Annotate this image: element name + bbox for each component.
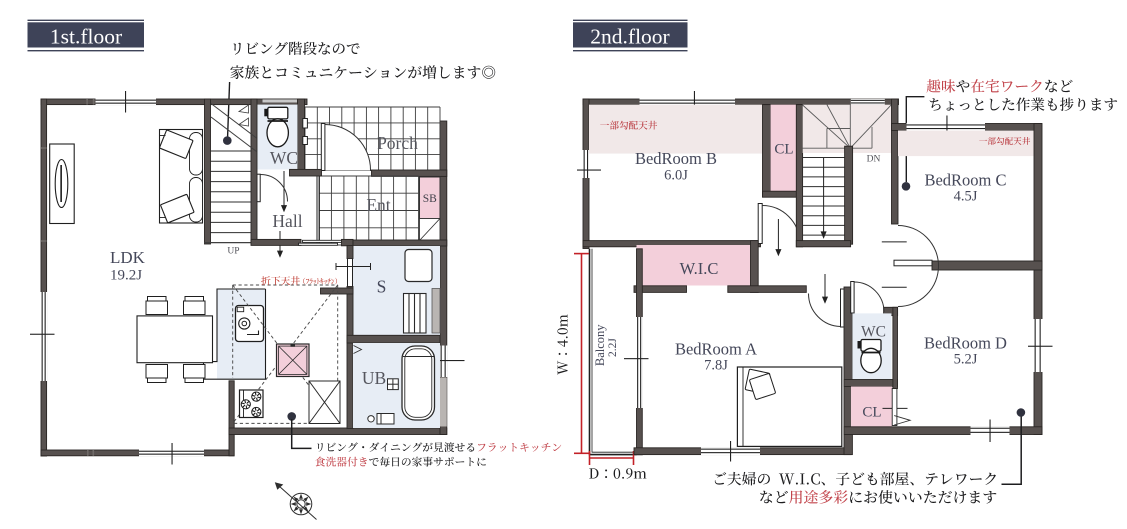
svg-text:CL: CL	[774, 142, 793, 158]
svg-text:1st.floor: 1st.floor	[50, 24, 122, 48]
svg-text:5.2J: 5.2J	[954, 352, 978, 368]
svg-text:WC: WC	[861, 324, 886, 341]
svg-text:DN: DN	[867, 155, 881, 165]
svg-text:2nd.floor: 2nd.floor	[590, 24, 669, 48]
svg-text:BedRoom D: BedRoom D	[924, 334, 1007, 353]
svg-text:6.0J: 6.0J	[664, 167, 688, 183]
svg-text:S: S	[377, 276, 387, 296]
svg-text:CL: CL	[862, 405, 881, 421]
svg-text:2.2J: 2.2J	[607, 338, 619, 357]
svg-text:UP: UP	[227, 247, 239, 257]
svg-text:Porch: Porch	[377, 133, 418, 153]
svg-text:BedRoom A: BedRoom A	[675, 340, 757, 359]
svg-text:BedRoom C: BedRoom C	[924, 171, 1006, 190]
svg-text:Ent: Ent	[366, 195, 390, 215]
svg-text:Hall: Hall	[272, 211, 302, 231]
svg-text:Balcony: Balcony	[593, 324, 607, 366]
svg-text:W.I.C: W.I.C	[680, 259, 719, 278]
svg-text:4.5J: 4.5J	[954, 188, 978, 204]
svg-text:7.8J: 7.8J	[704, 358, 728, 374]
svg-text:WC: WC	[270, 148, 298, 168]
svg-text:UB: UB	[362, 368, 386, 388]
svg-text:19.2J: 19.2J	[110, 268, 142, 284]
svg-text:LDK: LDK	[110, 248, 146, 267]
svg-text:BedRoom B: BedRoom B	[635, 149, 717, 168]
svg-text:SB: SB	[423, 193, 437, 205]
